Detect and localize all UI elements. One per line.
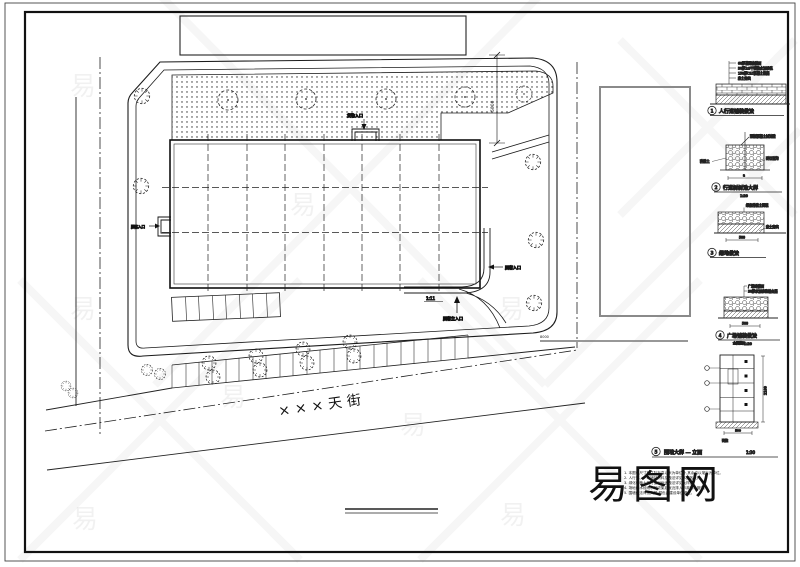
detail-note: 金属栏杆 <box>733 340 745 345</box>
detail-title: 行道树树池大样 <box>723 185 758 192</box>
note-line: 5. 围墙做法详见大样,颜色由建设单位确定。 <box>624 490 694 495</box>
detail-plaza: 广场砖铺面 30厚水泥砂浆结合层 500 4 广场铺装做法 1:20 <box>716 284 780 346</box>
detail-number: 3 <box>711 250 714 256</box>
drawing-title-underline <box>345 509 438 513</box>
watermark-glyph: 易 <box>498 295 524 325</box>
detail-dim: 500 <box>742 322 748 326</box>
detail-note: 素土夯实 <box>738 76 751 81</box>
dimension-text: 5000 <box>490 100 496 112</box>
entrance-right-label: 顾客入口 <box>505 264 521 270</box>
detail-note: 砖柱 <box>722 438 728 443</box>
ne-connector-path <box>492 135 549 159</box>
dimension-8000: 8000 <box>540 335 549 339</box>
tree-icon <box>528 232 543 247</box>
detail-note: 30厚1:3干硬性水泥砂浆 <box>738 66 773 71</box>
detail-title: 广场铺装做法 <box>727 333 757 340</box>
detail-title: 人行道铺装做法 <box>719 108 754 115</box>
entrance-canopy-left <box>158 217 171 236</box>
detail-fence: 金属栏杆 2100 500 砖柱 5 围墙大样 — 立面 1:30 <box>652 340 778 457</box>
arrow-left-head <box>488 265 494 270</box>
detail-note: 150厚C15混凝土垫层 <box>738 71 770 76</box>
watermark-glyph: 易 <box>72 505 98 535</box>
detail-number: 1 <box>711 108 714 114</box>
detail-dim2: 500 <box>735 429 741 433</box>
tree-icon <box>133 178 148 193</box>
watermark-brand: 易图网 <box>588 462 723 508</box>
tree-icon <box>526 295 541 310</box>
detail-number: 4 <box>719 333 722 339</box>
watermark-glyph: 易 <box>500 501 526 531</box>
entrance-left-label: 顾客入口 <box>131 224 145 229</box>
arrow-right-head <box>155 224 160 229</box>
entrance-main-label: 顾客主入口 <box>443 315 463 321</box>
watermark-glyph: 易 <box>220 383 246 413</box>
detail-note: 种植土 <box>700 159 710 164</box>
cad-site-plan-sheet: 易 易 易 易 易 易 易 易 易图网 <box>0 0 800 567</box>
detail-number: 2 <box>715 185 718 191</box>
note-line: 3. 绿化种植土及行道树树池做法详见大样图。 <box>624 480 697 485</box>
tree-icon <box>525 154 540 169</box>
detail-dim: a <box>743 174 745 178</box>
note-line: 2. 人行道、广场铺装材料及做法详见本图各大样。 <box>624 475 704 480</box>
drawing-canvas: 易 易 易 易 易 易 易 易 易图网 <box>0 0 800 567</box>
detail-note: 素土夯实 <box>766 224 779 229</box>
detail-scale: 1:20 <box>740 194 748 198</box>
detail-note: 30厚水泥砂浆结合层 <box>748 289 778 294</box>
detail-scale: 1:20 <box>744 342 752 346</box>
tree-icon <box>134 88 149 103</box>
ramp-label: 1:11 <box>426 296 435 301</box>
watermark-glyph: 易 <box>70 295 96 325</box>
detail-dim: 500 <box>739 236 745 240</box>
street-name-label: ×××天街 <box>277 392 367 420</box>
note-line: 1. 本图中尺寸标注除标高以米为单位外,其余均以毫米为单位。 <box>624 470 723 475</box>
detail-note: 绿化种植土回填 <box>746 203 769 208</box>
detail-scale: 1:30 <box>746 450 755 455</box>
entrance-top-label: 货物入口 <box>347 112 363 118</box>
detail-note: 广场砖铺面 <box>748 284 764 289</box>
watermark-glyph: 易 <box>70 72 96 102</box>
note-line: 4. 场地雨水经雨水口收集后就近排入市政雨水管网。 <box>624 485 708 490</box>
detail-title: 绿地做法 <box>719 250 739 257</box>
detail-title: 围墙大样 — 立面 <box>664 449 702 456</box>
street-upper-edge <box>46 388 172 410</box>
detail-dim: 2100 <box>764 386 768 395</box>
detail-note: 预制混凝土树池壁 <box>750 134 776 139</box>
detail-sidewalk: 60厚花岗岩铺面 30厚1:3干硬性水泥砂浆 150厚C15混凝土垫层 素土夯实… <box>708 61 790 116</box>
top-legend-box <box>180 16 466 55</box>
detail-note: 60厚花岗岩铺面 <box>738 61 761 66</box>
watermark-glyph: 易 <box>290 191 316 221</box>
detail-number: 5 <box>655 449 658 455</box>
detail-note: 碎石盲沟 <box>766 156 779 161</box>
